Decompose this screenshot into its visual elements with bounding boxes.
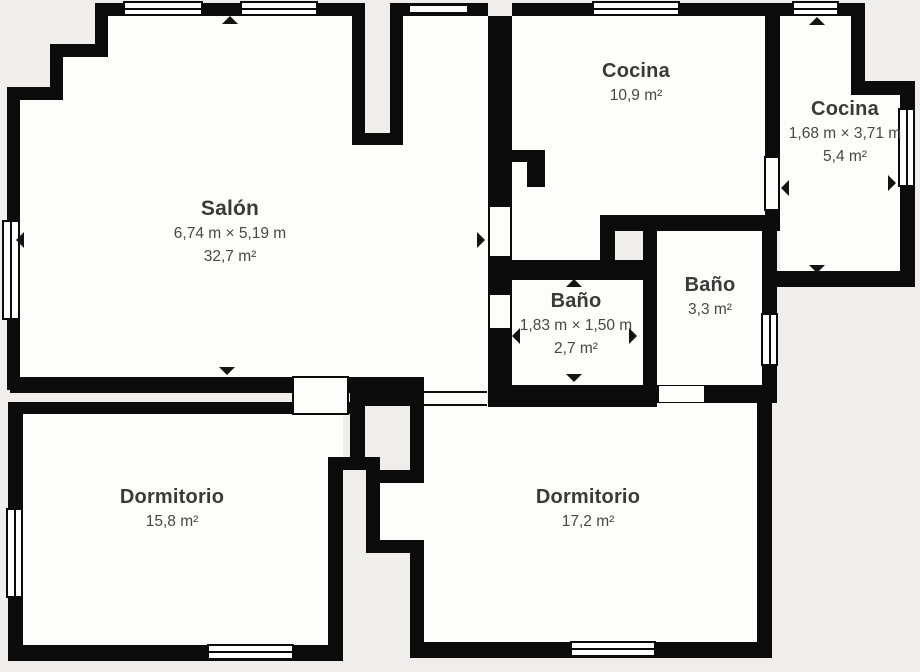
room-fill-salon <box>63 53 108 377</box>
room-area: 10,9 m² <box>556 84 716 107</box>
dimension-arrow-up-icon <box>566 279 582 287</box>
room-fill-salon <box>20 100 63 377</box>
wall <box>680 3 765 16</box>
wall <box>352 133 403 145</box>
room-label-dormitorio-1: Dormitorio 15,8 m² <box>72 484 272 533</box>
wall <box>488 260 657 280</box>
room-area: 32,7 m² <box>130 245 330 268</box>
room-name: Salón <box>130 196 330 222</box>
wall <box>352 3 365 145</box>
room-label-bano-2: Baño 3,3 m² <box>650 272 770 321</box>
floor-plan-canvas: Salón 6,74 m × 5,19 m 32,7 m² Cocina 10,… <box>0 0 920 672</box>
dimension-arrow-up-icon <box>809 17 825 25</box>
wall <box>600 215 615 265</box>
room-name: Cocina <box>556 58 716 84</box>
room-area: 15,8 m² <box>72 510 272 533</box>
wall <box>366 540 424 553</box>
window <box>6 508 23 598</box>
door-opening <box>659 386 704 402</box>
wall <box>765 271 915 287</box>
room-name: Dormitorio <box>488 484 688 510</box>
wall <box>467 3 488 16</box>
room-name: Baño <box>650 272 770 298</box>
window <box>240 1 318 16</box>
room-fill-dormitorio-2 <box>380 483 424 540</box>
wall <box>203 3 240 16</box>
room-area: 17,2 m² <box>488 510 688 533</box>
room-area: 2,7 m² <box>500 337 652 360</box>
dimension-arrow-left-icon <box>781 180 789 196</box>
room-label-bano-1: Baño 1,83 m × 1,50 m 2,7 m² <box>500 288 652 360</box>
dimension-arrow-right-icon <box>477 232 485 248</box>
room-area: 5,4 m² <box>772 145 918 168</box>
wall <box>488 385 657 407</box>
dimension-arrow-down-icon <box>219 367 235 375</box>
room-fill-dormitorio-1 <box>328 414 343 457</box>
dimension-arrow-down-icon <box>566 374 582 382</box>
exterior-shaft <box>615 231 643 263</box>
exterior-recess <box>365 0 390 133</box>
door-opening <box>424 391 487 406</box>
wall <box>328 457 343 660</box>
room-name: Cocina <box>772 96 918 122</box>
dimension-arrow-left-icon <box>16 232 24 248</box>
wall <box>318 3 352 16</box>
room-dimensions: 6,74 m × 5,19 m <box>130 222 330 245</box>
wall <box>390 3 403 145</box>
window <box>570 641 656 657</box>
wall <box>600 215 780 231</box>
room-label-cocina-1: Cocina 10,9 m² <box>556 58 716 107</box>
window <box>207 644 294 660</box>
room-area: 3,3 m² <box>650 298 770 321</box>
wall <box>512 3 592 16</box>
dimension-arrow-up-icon <box>222 16 238 24</box>
room-label-salon: Salón 6,74 m × 5,19 m 32,7 m² <box>130 196 330 268</box>
wall <box>757 390 772 658</box>
door-opening <box>488 205 512 258</box>
wall <box>366 470 424 483</box>
room-dimensions: 1,68 m × 3,71 m <box>772 122 918 145</box>
window <box>123 1 203 16</box>
room-name: Dormitorio <box>72 484 272 510</box>
dimension-arrow-down-icon <box>809 265 825 273</box>
room-label-cocina-2: Cocina 1,68 m × 3,71 m 5,4 m² <box>772 96 918 168</box>
window <box>792 1 839 16</box>
window <box>410 6 467 12</box>
wall <box>527 160 545 187</box>
window <box>592 1 680 16</box>
room-name: Baño <box>500 288 652 314</box>
room-dimensions: 1,83 m × 1,50 m <box>500 314 652 337</box>
door-opening <box>292 376 349 415</box>
room-label-dormitorio-2: Dormitorio 17,2 m² <box>488 484 688 533</box>
dimension-arrow-right-icon <box>888 175 896 191</box>
